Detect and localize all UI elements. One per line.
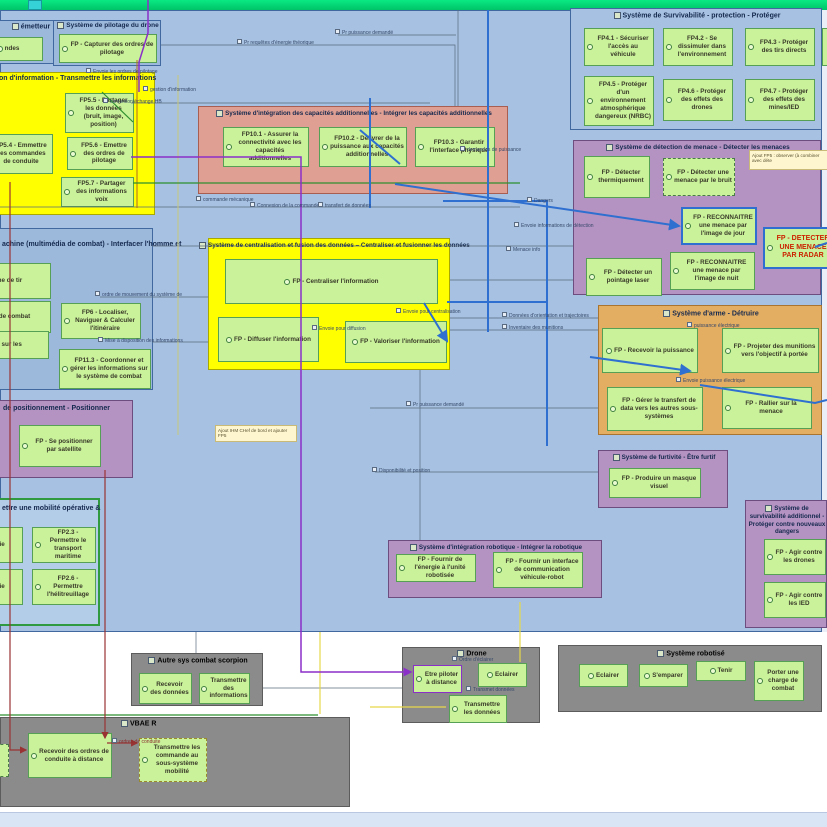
function-icon [496,567,502,573]
function-fp2-3[interactable]: FP2.3 - Permettre le transport maritime [32,527,96,563]
note-ajout-ihm[interactable]: Ajout IHM CHef de bord et ajouter FP5 [215,425,297,442]
block-icon [614,12,621,19]
function-fp5-7[interactable]: FP5.7 - Partager des informations voix [61,177,134,207]
block-detection-menace[interactable]: Système de détection de menace - Détecte… [573,140,821,295]
edge-label: Pr puissance demandé [335,29,393,36]
block-autre-sys-combat[interactable]: Autre sys combat scorpion Recevoir des d… [131,653,263,706]
function-icon [587,174,593,180]
function-icon [673,268,679,274]
function-icon [710,668,716,674]
function-icon [62,366,68,372]
function-icon [610,406,616,412]
block-survivabilite-protection[interactable]: Système de Survivabilité - protection - … [570,8,822,130]
function-agir-drones[interactable]: FP - Agir contre les drones [764,539,826,575]
block-icon [410,544,417,551]
function-recevoir-puissance[interactable]: FP - Recevoir la puissance [602,328,698,373]
function-icon [22,443,28,449]
block-icon [606,144,613,151]
function-icon [644,673,650,679]
function-icon [62,46,68,52]
edge-label: ordre de mouvement du système de [95,291,182,298]
function-projeter-munitions[interactable]: FP - Projeter des munitions vers l'objec… [722,328,819,373]
function-icon [748,44,754,50]
function-capturer-ordres[interactable]: FP - Capturer des ordres de pilotage [59,34,157,63]
edge-label: Disponibilité et position [372,467,430,474]
function-icon [767,554,773,560]
edge-label: Données d'orientation et trajectoires [502,312,589,319]
function-fp6[interactable]: FP6 - Localiser, Naviguer & Calculer l'i… [61,303,141,339]
function-icon [0,46,3,52]
function-icon [666,97,672,103]
function-icon [226,144,232,150]
function-detecter-thermiquement[interactable]: FP - Détecter thermiquement [584,156,650,198]
function-icon [322,144,328,150]
function-icon [416,676,422,682]
function-robot-eclairer[interactable]: Eclairer [579,664,628,687]
function-partial-right[interactable] [822,28,827,66]
function-icon [64,189,70,195]
function-reconnaitre-jour[interactable]: FP - RECONNAITRE une menace par l'image … [681,207,757,245]
function-masque-visuel[interactable]: FP - Produire un masque visuel [609,468,701,498]
edge-label: Dangers [527,197,553,204]
function-detecter-radar[interactable]: FP - DETECTER UNE MENACE PAR RADAR [763,227,827,269]
function-gerer-transfert[interactable]: FP - Gérer le transfert de data vers les… [607,387,703,431]
edge-label: Envoie puissance électrique [676,377,745,384]
block-icon [57,22,64,29]
edge-label: puissance électrique [687,322,740,329]
edge-label: commande mécanique [196,196,254,203]
function-icon [685,223,691,229]
function-agir-ied[interactable]: FP - Agir contre les IED [764,582,826,618]
function-systeme-combat[interactable]: système de combat [0,301,51,333]
edge-label: Transmet données [466,686,515,693]
block-icon [12,23,19,30]
function-systeme-tir[interactable]: système de tir [0,263,51,299]
function-icon [64,318,70,324]
function-fp4-6[interactable]: FP4.6 - Protéger des effets des drones [663,79,733,121]
function-icon [725,405,731,411]
function-icon [284,279,290,285]
function-fp11-3[interactable]: FP11.3 - Coordonner et gérer les informa… [59,349,151,389]
note-ajout-fp5[interactable]: Ajout FP5 : observer (à combiner avec dé… [749,150,827,170]
block-icon [657,650,664,657]
function-icon [35,584,41,590]
function-icon [142,757,148,763]
edge-label: gestion d'information [143,86,196,93]
block-centralisation-fusion[interactable]: Système de centralisation et fusion des … [208,238,450,370]
block-vbae-r[interactable]: VBAE R Recevoir des ordres de conduite à… [0,717,350,807]
function-icon [142,686,148,692]
function-icon [35,542,41,548]
function-icon [666,44,672,50]
function-icon [352,339,358,345]
function-icon [606,348,612,354]
top-cyan-port[interactable] [28,0,42,10]
edge-label: Menace info [506,246,540,253]
edge-label: transfert de données [318,202,371,209]
function-icon [589,274,595,280]
edge-label: Envoie pour diffusion [312,325,366,332]
function-icon [612,480,618,486]
function-icon [70,151,76,157]
function-icon [587,44,593,50]
edge-label: Connexion de la commande [250,202,319,209]
edge-label: Mise à disposition des informations [98,337,183,344]
function-icon [767,597,773,603]
function-detecter-laser[interactable]: FP - Détecter un pointage laser [586,258,662,296]
function-fp5-4[interactable]: FP5.4 - Emmettre des commandes de condui… [0,134,53,174]
block-survivabilite-additionnel[interactable]: Système de survivabilité additionnel - P… [745,500,827,628]
edge-label: Inventaire des munitions [502,324,563,331]
block-icon [199,242,206,249]
edge-label: Envoie pour centralisation [396,308,461,315]
function-fp4-2[interactable]: FP4.2 - Se dissimuler dans l'environneme… [663,28,733,66]
function-drone-eclairer[interactable]: Eclairer [478,663,527,687]
function-positionner-satellite[interactable]: FP - Se positionner par satellite [19,425,101,467]
function-partial-left[interactable] [0,744,9,777]
function-icon [587,98,593,104]
function-icon [418,144,424,150]
canvas-bottom-margin [0,812,827,827]
function-icon [757,678,763,684]
block-icon [121,720,128,727]
edge-label: Ordre d'éclairer [452,656,493,663]
block-mobilite-operative[interactable]: ettre une mobilité opérative & tre le vo… [0,498,100,626]
function-icon [31,753,37,759]
block-transmission-information[interactable]: on d'information - Transmettre les infor… [0,72,155,215]
function-transport-partial-1[interactable]: tre le voie [0,527,23,563]
diagram-canvas: émetteur ndes Système de pilotage du dro… [0,0,827,827]
block-systeme-robotise[interactable]: Système robotisé Eclairer S'emparer Teni… [558,645,822,712]
function-fp10-2[interactable]: FP10.2 - Délivrer de la puissance aux ca… [319,127,407,167]
block-icon [216,110,223,117]
block-furtivite[interactable]: Système de furtivité - Être furtif FP - … [598,450,728,508]
function-icon [748,97,754,103]
function-robot-semparer[interactable]: S'emparer [639,664,688,687]
edge-label: Envoie les ordres de pilotage [86,68,158,75]
function-icon [226,337,232,343]
function-fournir-energie[interactable]: FP - Fournir de l'énergie à l'unité robo… [396,554,476,582]
function-rallier-menace[interactable]: FP - Rallier sur la menace [722,387,812,429]
function-robot-porter-charge[interactable]: Porter une charge de combat [754,661,804,701]
function-icon [399,565,405,571]
function-fp5-6[interactable]: FP5.6 - Emettre des ordres de pilotage [67,137,133,170]
function-etre-pilote-distance[interactable]: Etre piloter à distance [413,665,462,693]
function-transmettre-informations[interactable]: Transmettre des informations [199,673,250,704]
block-icon [765,505,772,512]
function-transport-partial-2[interactable]: tre le voie [0,569,23,605]
function-icon [201,686,207,692]
function-detecter-bruit[interactable]: FP - Détecter une menace par le bruit [663,158,735,196]
function-icon [767,245,773,251]
edge-label: Envoie informations de détection [514,222,594,229]
block-positionnement[interactable]: de positionnement - Positionner FP - Se … [0,400,133,478]
edge-label: Pr requêtes d'énergie théorique [237,39,314,46]
block-integration-robotique[interactable]: Système d'intégration robotique - Intégr… [388,540,602,598]
function-icon [487,672,493,678]
function-informations[interactable]: rmations sur les [0,331,49,359]
function-fp4-1[interactable]: FP4.1 - Sécuriser l'accès au véhicule [584,28,654,66]
edge-label: ordres de conduite [112,738,160,745]
block-icon [148,657,155,664]
edge-label: connexion/échange HB [103,98,162,105]
function-drone-transmettre[interactable]: Transmettre les données [449,695,507,723]
block-icon [663,310,670,317]
function-icon [725,348,731,354]
edge-label: demandes de puissance [460,146,521,153]
block-icon [613,454,620,461]
function-diffuser[interactable]: FP - Diffuser l'information [218,317,319,362]
function-box[interactable]: ndes [0,37,43,61]
function-fp4-3[interactable]: FP4.3 - Protéger des tirs directs [745,28,815,66]
function-icon [68,110,74,116]
function-recevoir-ordres-conduite[interactable]: Recevoir des ordres de conduite à distan… [28,733,112,778]
function-reconnaitre-nuit[interactable]: FP - RECONNAITRE une menace par l'image … [670,252,755,290]
function-fp2-6[interactable]: FP2.6 - Permettre l'hélitreuillage [32,569,96,605]
function-centraliser[interactable]: FP - Centraliser l'information [225,259,438,304]
function-fp10-1[interactable]: FP10.1 - Assurer la connectivité avec le… [223,127,309,167]
function-fp4-7[interactable]: FP4.7 - Protéger des effets des mines/IE… [745,79,815,121]
function-robot-tenir[interactable]: Tenir [696,661,746,681]
function-icon [452,706,458,712]
function-interface-communication[interactable]: FP - Fournir un interface de communicati… [493,552,583,588]
block-interface-homme-machine[interactable]: achine (multimédia de combat) - Interfac… [0,228,153,390]
function-icon [588,673,594,679]
function-icon [666,174,672,180]
function-recevoir-donnees[interactable]: Recevoir des données [139,673,192,704]
block-pilotage-drone[interactable]: Système de pilotage du drone FP - Captur… [53,20,161,66]
function-fp4-5[interactable]: FP4.5 - Protéger d'un environnement atmo… [584,76,654,126]
edge-label: Pr puissance demandé [406,401,464,408]
